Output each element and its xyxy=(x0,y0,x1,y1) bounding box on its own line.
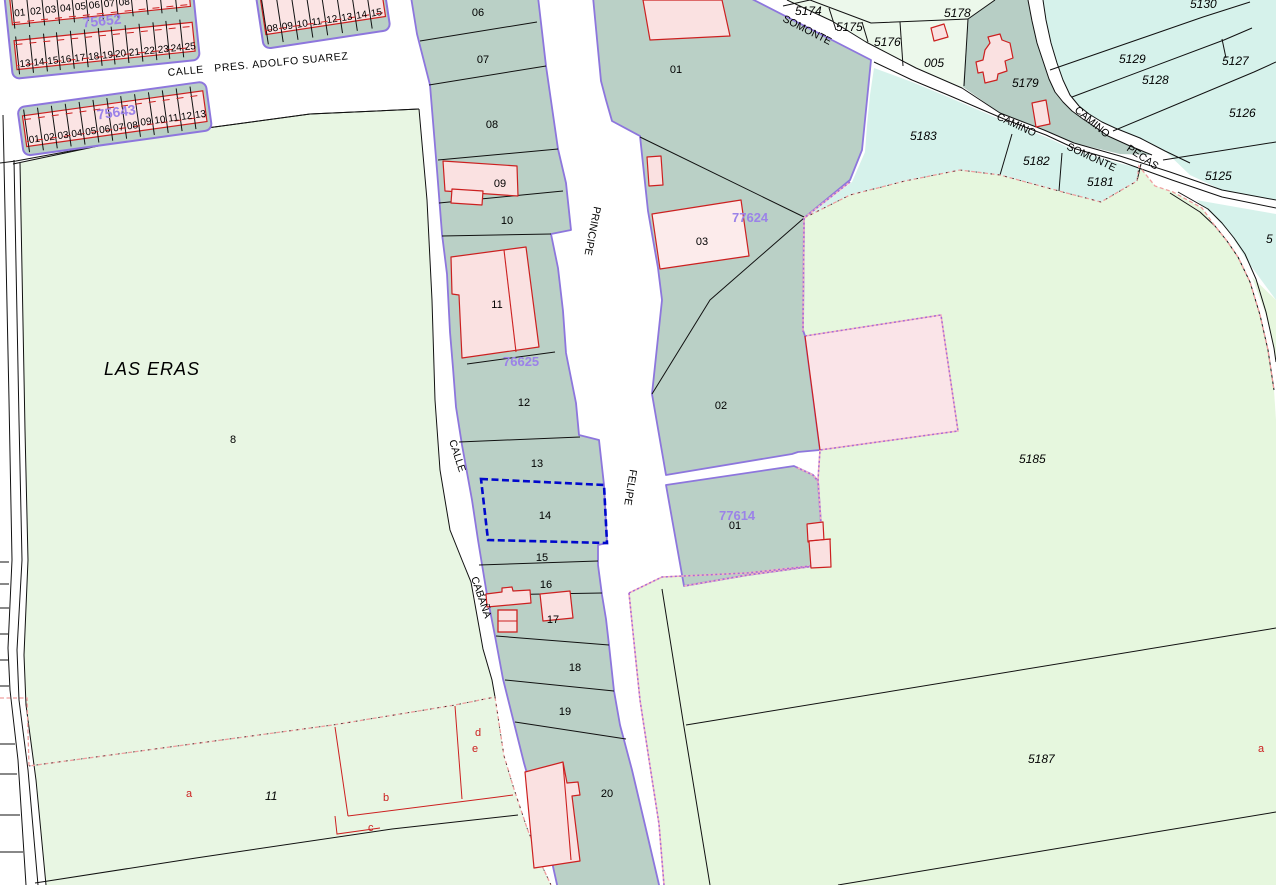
svg-text:13: 13 xyxy=(531,458,543,470)
svg-text:11: 11 xyxy=(491,299,502,311)
svg-text:77624: 77624 xyxy=(732,210,769,225)
svg-text:09: 09 xyxy=(140,116,153,128)
svg-text:02: 02 xyxy=(30,6,43,18)
svg-text:06: 06 xyxy=(88,0,101,12)
svg-text:11: 11 xyxy=(265,789,277,803)
svg-text:5175: 5175 xyxy=(836,20,863,34)
svg-text:005: 005 xyxy=(924,56,944,70)
svg-text:20: 20 xyxy=(601,788,613,800)
svg-text:e: e xyxy=(472,743,478,755)
svg-text:LAS ERAS: LAS ERAS xyxy=(104,359,200,379)
svg-text:12: 12 xyxy=(180,110,193,122)
svg-text:03: 03 xyxy=(696,236,708,248)
svg-text:10: 10 xyxy=(296,18,309,31)
svg-text:08: 08 xyxy=(486,119,498,131)
svg-text:5183: 5183 xyxy=(910,129,937,143)
svg-text:21: 21 xyxy=(128,47,141,59)
svg-text:5178: 5178 xyxy=(944,6,971,20)
svg-text:09: 09 xyxy=(281,20,294,33)
svg-text:07: 07 xyxy=(103,0,116,10)
svg-text:18: 18 xyxy=(88,51,101,63)
svg-text:5130: 5130 xyxy=(1190,0,1217,11)
svg-text:19: 19 xyxy=(559,706,571,718)
svg-text:17: 17 xyxy=(74,52,87,64)
svg-text:01: 01 xyxy=(14,7,27,19)
svg-text:12: 12 xyxy=(518,397,530,409)
svg-text:5185: 5185 xyxy=(1019,452,1046,466)
svg-text:15: 15 xyxy=(370,7,383,20)
svg-text:05: 05 xyxy=(74,1,87,13)
svg-text:14: 14 xyxy=(355,9,368,22)
svg-text:d: d xyxy=(475,727,481,739)
svg-text:03: 03 xyxy=(57,130,70,142)
svg-text:06: 06 xyxy=(99,124,112,136)
svg-text:5187: 5187 xyxy=(1028,752,1056,766)
svg-text:18: 18 xyxy=(569,662,581,674)
svg-text:5126: 5126 xyxy=(1229,106,1256,120)
svg-text:5127: 5127 xyxy=(1222,54,1250,68)
svg-text:16: 16 xyxy=(540,579,552,591)
svg-text:05: 05 xyxy=(85,126,98,138)
svg-text:23: 23 xyxy=(157,44,170,56)
svg-text:5: 5 xyxy=(1266,232,1273,246)
svg-text:15: 15 xyxy=(47,55,60,67)
svg-text:07: 07 xyxy=(112,122,125,134)
svg-text:16: 16 xyxy=(60,54,73,66)
svg-text:22: 22 xyxy=(143,45,156,57)
svg-text:07: 07 xyxy=(477,54,489,66)
svg-text:5181: 5181 xyxy=(1087,175,1114,189)
svg-text:b: b xyxy=(383,792,389,804)
svg-text:5174: 5174 xyxy=(795,4,822,18)
svg-text:08: 08 xyxy=(266,23,279,36)
svg-text:04: 04 xyxy=(60,3,73,15)
svg-text:8: 8 xyxy=(230,434,236,446)
svg-text:11: 11 xyxy=(311,16,323,28)
svg-text:11: 11 xyxy=(168,112,180,124)
svg-text:13: 13 xyxy=(341,11,354,24)
svg-text:5182: 5182 xyxy=(1023,154,1050,168)
svg-text:14: 14 xyxy=(33,57,46,69)
svg-text:c: c xyxy=(368,822,374,834)
svg-text:02: 02 xyxy=(715,400,727,412)
svg-text:06: 06 xyxy=(472,7,484,19)
svg-text:5129: 5129 xyxy=(1119,52,1146,66)
svg-text:08: 08 xyxy=(126,120,139,132)
svg-text:01: 01 xyxy=(28,134,41,146)
svg-text:5179: 5179 xyxy=(1012,76,1039,90)
svg-text:12: 12 xyxy=(326,14,339,27)
svg-text:04: 04 xyxy=(71,128,84,140)
svg-text:10: 10 xyxy=(501,215,513,227)
svg-text:17: 17 xyxy=(547,614,559,626)
svg-text:13: 13 xyxy=(19,58,32,70)
svg-text:5128: 5128 xyxy=(1142,73,1169,87)
svg-text:a: a xyxy=(1258,743,1265,755)
svg-text:01: 01 xyxy=(670,64,682,76)
svg-text:77614: 77614 xyxy=(719,508,756,523)
svg-text:02: 02 xyxy=(43,132,56,144)
svg-text:19: 19 xyxy=(102,50,115,62)
svg-text:14: 14 xyxy=(539,510,551,522)
svg-text:15: 15 xyxy=(536,552,548,564)
svg-text:13: 13 xyxy=(194,109,207,121)
svg-text:08: 08 xyxy=(118,0,131,9)
svg-text:09: 09 xyxy=(494,178,506,190)
svg-text:20: 20 xyxy=(114,48,127,60)
svg-text:10: 10 xyxy=(154,114,167,126)
svg-text:76625: 76625 xyxy=(503,354,539,369)
svg-text:5176: 5176 xyxy=(874,35,901,49)
svg-text:5125: 5125 xyxy=(1205,169,1232,183)
svg-text:24: 24 xyxy=(170,42,183,54)
svg-text:03: 03 xyxy=(45,4,58,16)
svg-text:a: a xyxy=(186,788,193,800)
svg-text:25: 25 xyxy=(184,41,197,53)
